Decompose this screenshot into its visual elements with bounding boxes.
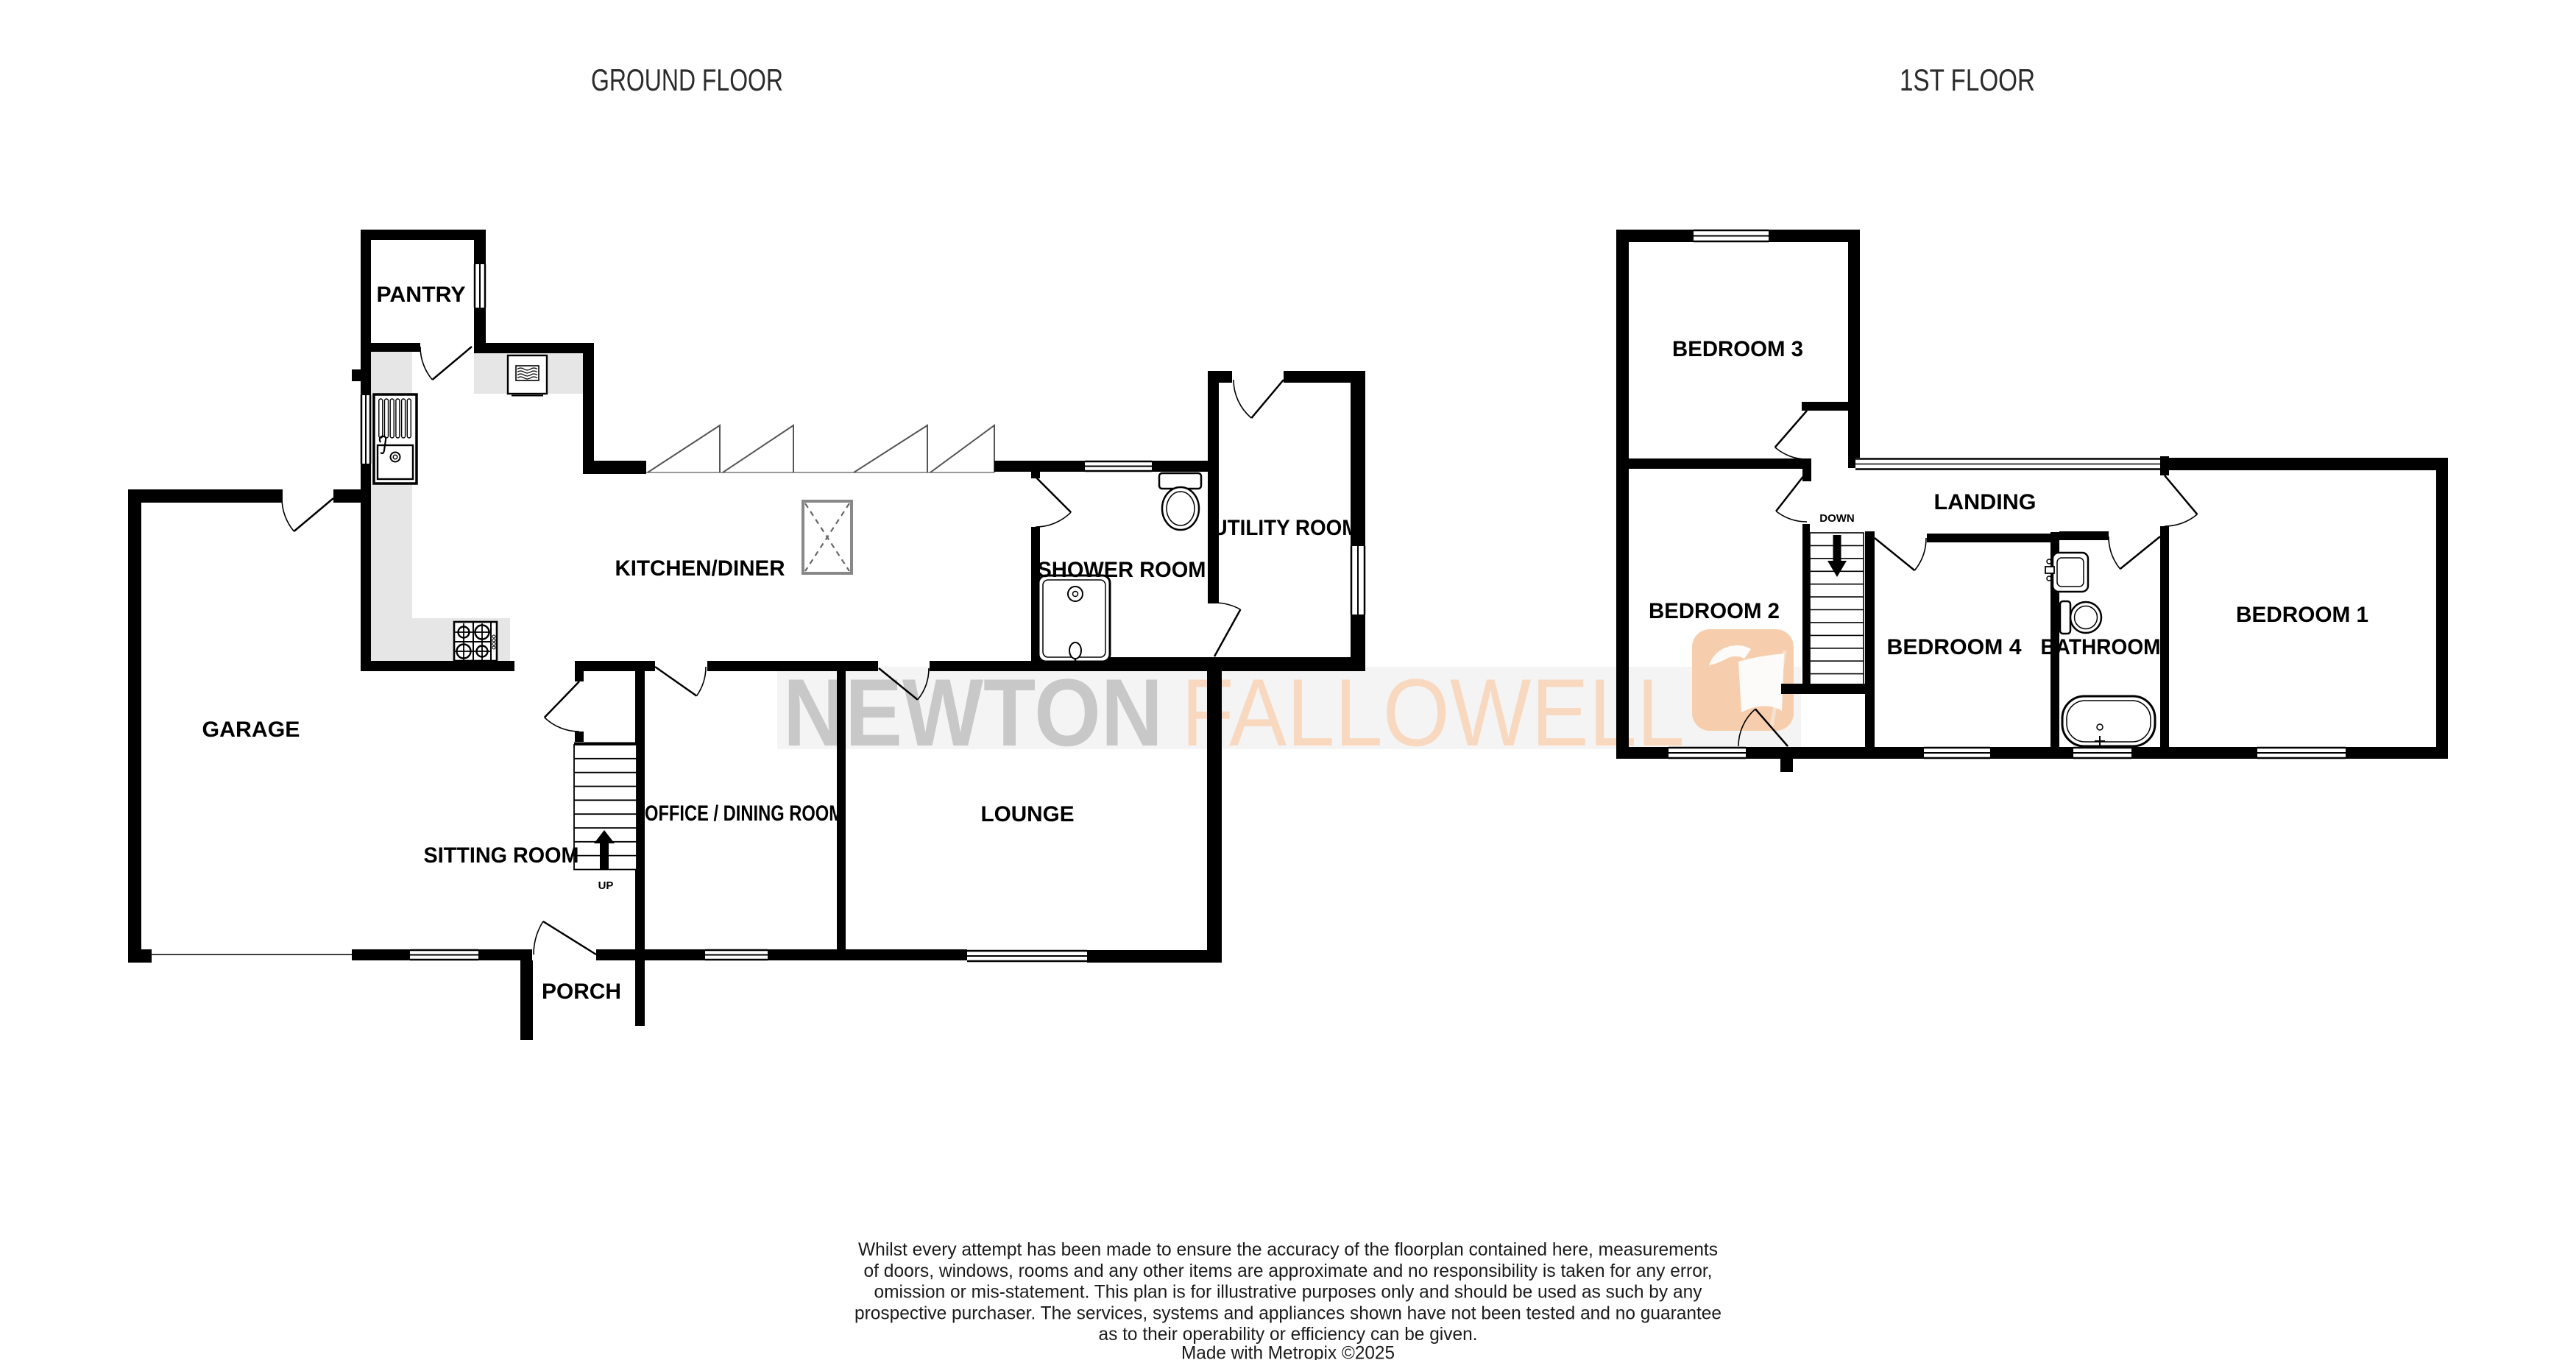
svg-text:UP: UP: [598, 879, 614, 892]
svg-text:SHOWER ROOM: SHOWER ROOM: [1038, 558, 1206, 582]
svg-text:1ST FLOOR: 1ST FLOOR: [1900, 63, 2035, 97]
svg-text:Whilst every attempt has been: Whilst every attempt has been made to en…: [858, 1239, 1718, 1260]
svg-text:UTILITY ROOM: UTILITY ROOM: [1213, 516, 1359, 540]
svg-text:DOWN: DOWN: [1819, 512, 1855, 525]
svg-text:GARAGE: GARAGE: [202, 718, 300, 742]
svg-text:PANTRY: PANTRY: [377, 283, 466, 307]
svg-text:LANDING: LANDING: [1934, 490, 2037, 514]
svg-text:BEDROOM 1: BEDROOM 1: [2236, 603, 2368, 627]
svg-text:omission or mis-statement. Thi: omission or mis-statement. This plan is …: [874, 1282, 1702, 1303]
svg-text:BATHROOM: BATHROOM: [2041, 635, 2161, 659]
svg-text:Made with Metropix ©2025: Made with Metropix ©2025: [1181, 1343, 1395, 1360]
svg-text:PORCH: PORCH: [542, 980, 621, 1004]
svg-text:of doors, windows, rooms and a: of doors, windows, rooms and any other i…: [864, 1261, 1713, 1281]
svg-text:OFFICE / DINING ROOM: OFFICE / DINING ROOM: [645, 801, 843, 826]
svg-text:FALLOWELL: FALLOWELL: [1181, 659, 1685, 766]
svg-text:BEDROOM 2: BEDROOM 2: [1649, 599, 1780, 623]
svg-text:KITCHEN/DINER: KITCHEN/DINER: [615, 556, 785, 581]
svg-text:SITTING ROOM: SITTING ROOM: [424, 843, 579, 868]
svg-text:prospective purchaser. The ser: prospective purchaser. The services, sys…: [854, 1303, 1722, 1323]
svg-text:BEDROOM 3: BEDROOM 3: [1672, 337, 1803, 361]
svg-text:as to their operability or eff: as to their operability or efficiency ca…: [1099, 1324, 1478, 1345]
svg-text:GROUND FLOOR: GROUND FLOOR: [591, 63, 783, 97]
svg-text:BEDROOM 4: BEDROOM 4: [1887, 635, 2022, 659]
svg-text:LOUNGE: LOUNGE: [981, 802, 1075, 826]
